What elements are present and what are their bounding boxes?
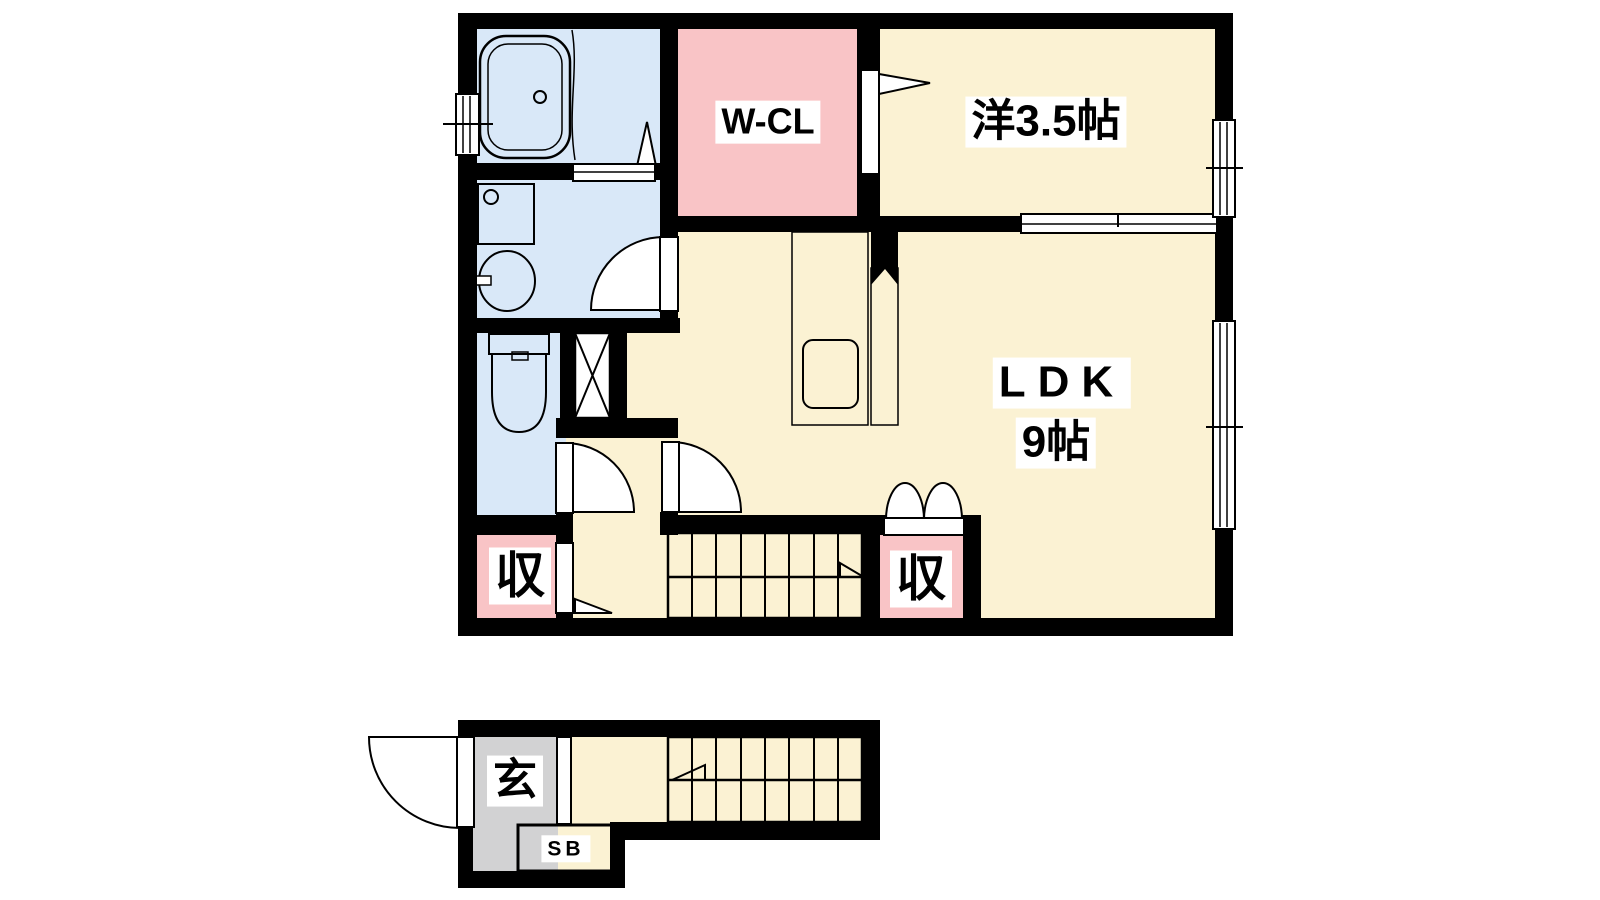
room-label-western-room: 洋3.5帖 (965, 97, 1126, 148)
room-label-storage-right: 収 (890, 551, 952, 608)
room-label-ldk: LDK (993, 358, 1131, 409)
hall-door (662, 442, 679, 512)
entrance-partition (557, 737, 571, 824)
bedroom-sliding-door (1021, 214, 1217, 233)
room-label-entrance: 玄 (487, 756, 543, 807)
room-label-walk-in-closet: W-CL (715, 101, 820, 144)
room-label-shoe-box: SB (541, 835, 590, 862)
closet-door (861, 70, 879, 174)
pipe-space-icon (575, 333, 610, 418)
storage-left-door (556, 543, 573, 613)
room-label-ldk-size: 9帖 (1016, 418, 1096, 469)
entrance-door-swing (369, 737, 460, 828)
washroom-door (660, 237, 678, 311)
entrance-door (457, 737, 474, 827)
floor-plan-page: W-CL 洋3.5帖 LDK 9帖 収 収 玄 SB (0, 0, 1600, 900)
toilet-room-floor (466, 328, 566, 518)
bath-sliding-door (573, 164, 655, 181)
toilet-door (556, 443, 573, 513)
room-label-storage-left: 収 (489, 548, 551, 605)
lower-floor (369, 720, 880, 888)
